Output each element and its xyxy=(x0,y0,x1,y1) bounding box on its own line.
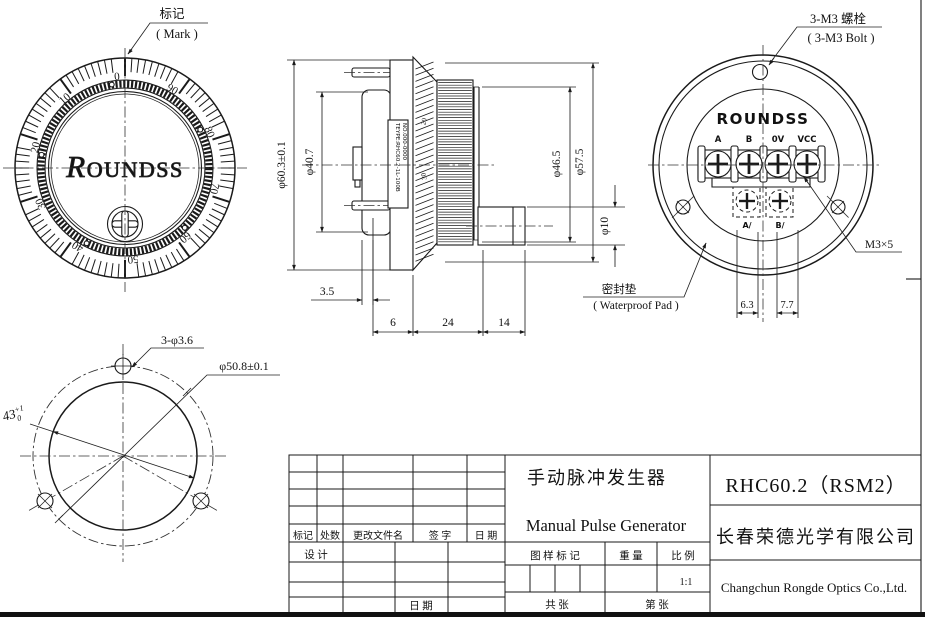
svg-text:3-M3 螺栓: 3-M3 螺栓 xyxy=(810,11,866,26)
company-cn: 长春荣德光学有限公司 xyxy=(716,527,916,547)
dial-tick xyxy=(212,209,224,215)
dim-d10: φ10 xyxy=(527,185,625,267)
mount-hole-top xyxy=(111,354,135,378)
title-block: 标记 处数 更改文件名 签 字 日 期 设 计 日 期 图 样 标 记 重 量 … xyxy=(289,455,921,613)
dial-tick xyxy=(221,161,234,162)
dial-tick xyxy=(16,174,29,175)
mount-hole-right xyxy=(193,493,209,509)
svg-text:密封垫: 密封垫 xyxy=(602,282,637,296)
dial-tick xyxy=(176,249,183,260)
lower-terminal-screws xyxy=(736,190,791,212)
sheets-total-label: 共 张 xyxy=(545,599,569,611)
terminal-label: 0V xyxy=(772,135,785,145)
dial-tick xyxy=(199,229,209,238)
dial-tick xyxy=(218,141,231,144)
dial-tick xyxy=(143,262,146,275)
dial-tick xyxy=(98,62,101,75)
title-cn: 手动脉冲发生器 xyxy=(527,468,667,488)
side-view: 2030 TEYPE:RHC60.2-1L-100B NO.000-0000 φ… xyxy=(276,57,625,336)
dial-tick xyxy=(160,66,165,79)
dial-tick xyxy=(220,154,233,156)
svg-text:6.3: 6.3 xyxy=(740,300,753,311)
dial-tick xyxy=(85,66,90,79)
dial-tick xyxy=(166,69,172,81)
dial-tick xyxy=(36,224,47,232)
rev-header-sign: 签 字 xyxy=(429,529,452,542)
scale-value: 1:1 xyxy=(680,577,693,588)
dial-tick xyxy=(45,234,55,243)
center-boss xyxy=(353,147,362,180)
dial-tick xyxy=(85,257,90,270)
front-view: 0102030405060708090 ROUNDSS 标记 ( Mark ) xyxy=(3,7,247,292)
rev-header-file: 更改文件名 xyxy=(353,529,403,542)
svg-text:6: 6 xyxy=(390,317,396,329)
dial-tick xyxy=(160,257,165,270)
dial-dot xyxy=(39,152,44,157)
svg-text:7.7: 7.7 xyxy=(780,300,793,311)
flange xyxy=(362,90,391,235)
dial-tick xyxy=(118,264,119,277)
dial-tick xyxy=(26,121,38,127)
dial-tick xyxy=(16,154,29,156)
dial-tick xyxy=(219,147,232,150)
dial-tick xyxy=(191,88,200,98)
dial-tick xyxy=(72,72,79,84)
dial-tick xyxy=(137,59,139,72)
title-en: Manual Pulse Generator xyxy=(526,516,687,535)
dial-dot xyxy=(84,241,89,246)
dial-tick xyxy=(179,242,189,256)
lower-terminal-label: B/ xyxy=(775,221,784,230)
engineering-drawing: 0102030405060708090 ROUNDSS 标记 ( Mark ) xyxy=(0,0,925,617)
svg-text:φ46.5: φ46.5 xyxy=(551,150,563,177)
front-logo: ROUNDSS xyxy=(65,149,183,184)
dial-tick xyxy=(23,128,36,133)
lower-terminal-label: A/ xyxy=(742,221,751,230)
m3x5-annotation: M3×5 xyxy=(804,177,902,252)
dial-tick xyxy=(214,203,227,208)
svg-text:3-φ3.6: 3-φ3.6 xyxy=(161,333,193,347)
dial-tick xyxy=(203,104,214,112)
drawing-mark-label: 图 样 标 记 xyxy=(530,549,580,562)
dial-tick xyxy=(155,259,159,272)
dial-tick xyxy=(41,229,51,238)
svg-text:3.5: 3.5 xyxy=(320,286,335,298)
dial-tick xyxy=(149,62,152,75)
dial-tick xyxy=(45,93,55,102)
dial-tick xyxy=(221,174,234,175)
rev-header-count: 处数 xyxy=(320,529,340,542)
rev-header-date: 日 期 xyxy=(475,530,498,542)
dial-tick xyxy=(209,115,221,122)
svg-text:φ60.3±0.1: φ60.3±0.1 xyxy=(276,141,288,189)
dial-tick xyxy=(171,252,178,264)
dial-dot xyxy=(182,225,187,230)
dial-tick xyxy=(55,242,64,252)
back-view: ROUNDSS AB0VVCC A/B/ xyxy=(583,11,902,322)
dial-tick xyxy=(78,69,84,81)
svg-text:φ40.7: φ40.7 xyxy=(304,148,316,175)
dial-tick xyxy=(36,104,47,112)
dial-tick xyxy=(91,259,95,272)
dial-tick xyxy=(166,255,172,267)
dial-tick xyxy=(155,64,159,77)
dial-tick xyxy=(212,196,229,201)
svg-text:φ10: φ10 xyxy=(599,217,611,235)
svg-text:φ50.8±0.1: φ50.8±0.1 xyxy=(219,359,269,373)
type-label-line1: TEYPE:RHC60.2-1L-100B xyxy=(394,122,400,192)
sheet-border-bottom xyxy=(0,612,925,617)
dial-dot xyxy=(109,82,114,87)
dial-tick xyxy=(33,219,44,226)
dial-tick xyxy=(199,98,209,107)
svg-text:24: 24 xyxy=(442,317,454,329)
dial-tick xyxy=(41,98,51,107)
dial-tick xyxy=(33,109,44,116)
dial-edge xyxy=(413,57,437,270)
mark-label-cn: 标记 xyxy=(159,7,185,21)
weight-label: 重 量 xyxy=(619,549,643,562)
dial-tick xyxy=(50,238,59,248)
dial-tick xyxy=(61,79,71,93)
center-boss-step xyxy=(355,180,360,187)
dial-tick xyxy=(104,262,107,275)
dial-tick xyxy=(195,234,205,243)
dial-tick xyxy=(186,84,195,94)
svg-text:φ57.5: φ57.5 xyxy=(574,148,586,175)
terminal-label: B xyxy=(746,135,752,145)
dial-tick xyxy=(66,76,73,87)
dial-number: 50 xyxy=(126,253,139,266)
svg-text:M3×5: M3×5 xyxy=(865,239,893,251)
dial-tick xyxy=(98,261,101,274)
dial-tick xyxy=(131,59,132,72)
svg-text:14: 14 xyxy=(498,317,510,329)
dial-tick xyxy=(203,224,214,232)
dial-tick xyxy=(111,263,113,276)
company-en: Changchun Rongde Optics Co.,Ltd. xyxy=(721,580,907,595)
dial-dot xyxy=(198,127,203,132)
dim-chord-43: 43+10 xyxy=(1,403,194,478)
dial-tick xyxy=(143,60,146,73)
lower-terminal-labels: A/B/ xyxy=(742,221,784,230)
dial-tick xyxy=(19,192,32,195)
dial-tick xyxy=(78,255,84,267)
dial-tick xyxy=(91,64,95,77)
type-label-line2: NO.000-0000 xyxy=(401,123,407,161)
dim-bolt-circle: φ50.8±0.1 xyxy=(55,359,280,523)
sheet-no-label: 第 张 xyxy=(645,598,669,611)
model-number: RHC60.2（RSM2） xyxy=(725,474,906,497)
rev-header-mark: 标记 xyxy=(293,530,313,542)
mark-annotation: 标记 ( Mark ) xyxy=(128,7,208,54)
m3-bolt-hole xyxy=(753,65,768,80)
dial-tick xyxy=(149,261,152,274)
mark-label-en: ( Mark ) xyxy=(156,27,198,41)
terminal-label: A xyxy=(715,135,722,145)
dial-tick xyxy=(111,59,113,72)
terminal-block: AB0VVCC A/B/ xyxy=(698,135,825,230)
dial-tick xyxy=(21,134,38,139)
drawing-sheet: 0102030405060708090 ROUNDSS 标记 ( Mark ) xyxy=(0,0,925,617)
dim-3-holes: 3-φ3.6 xyxy=(132,333,204,367)
terminal-label: VCC xyxy=(797,135,816,145)
mount-hole-left xyxy=(37,493,53,509)
dial-tick xyxy=(206,109,217,116)
waterproof-annotation: 密封垫 ( Waterproof Pad ) xyxy=(583,243,706,312)
svg-text:( Waterproof Pad ): ( Waterproof Pad ) xyxy=(593,300,679,312)
dial-tick xyxy=(17,186,30,189)
dial-tick xyxy=(29,115,41,122)
terminal-labels: AB0VVCC xyxy=(715,135,817,145)
mount-view: 3-φ3.6 φ50.8±0.1 43+10 xyxy=(1,333,280,562)
scale-label: 比 例 xyxy=(671,549,695,562)
dial-tick xyxy=(206,219,217,226)
svg-text:43+10: 43+10 xyxy=(1,403,27,426)
dial-tick xyxy=(29,214,41,221)
dial-tick xyxy=(104,60,107,73)
svg-text:( 3-M3 Bolt ): ( 3-M3 Bolt ) xyxy=(807,31,874,45)
dial-tick xyxy=(16,180,29,182)
dial-tick xyxy=(220,180,233,182)
dial-tick xyxy=(16,161,29,162)
dial-tick xyxy=(195,93,205,102)
date-label: 日 期 xyxy=(409,600,433,612)
case-screw-left xyxy=(672,196,694,218)
design-label: 设 计 xyxy=(304,548,328,561)
dial-tick xyxy=(209,214,221,221)
